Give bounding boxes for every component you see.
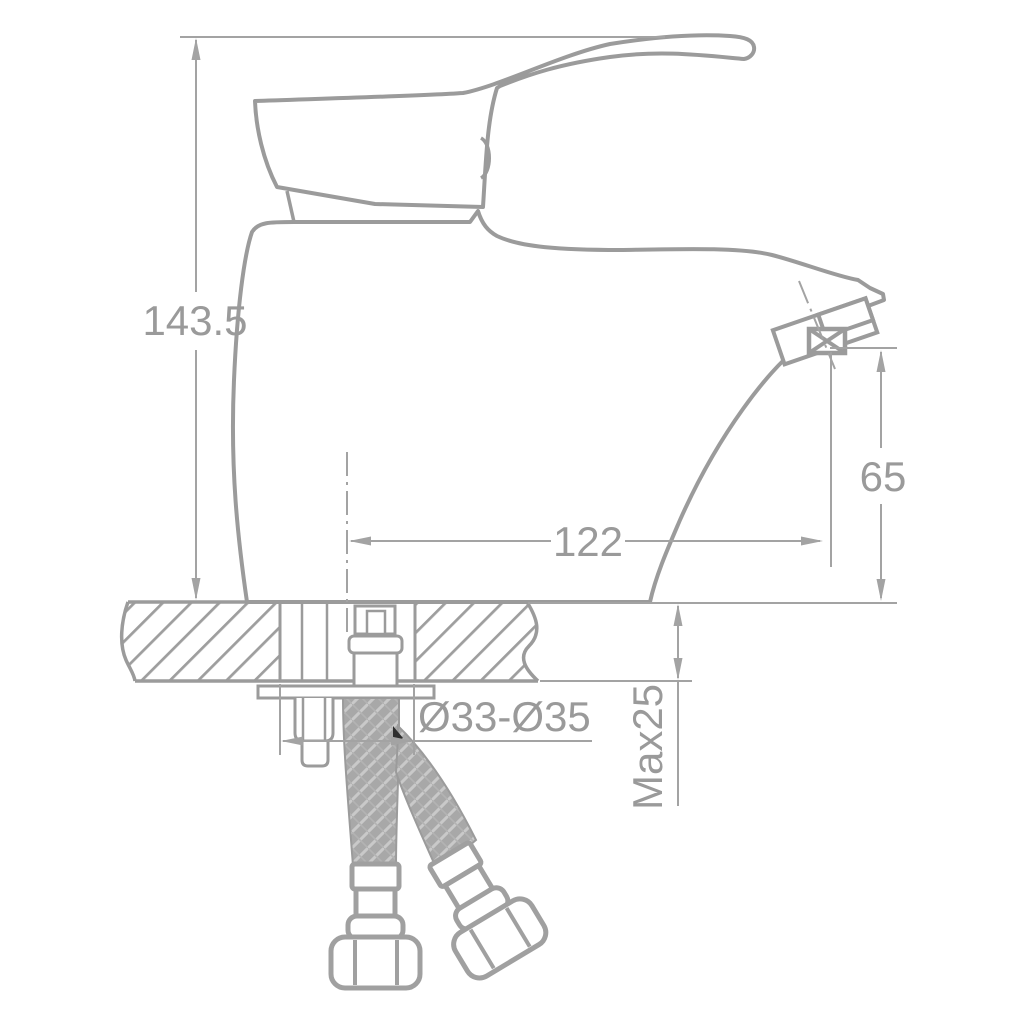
arrow-spout-height-bottom — [877, 579, 886, 601]
arrow-thickness-bottom — [674, 658, 683, 680]
arrow-height-top — [192, 38, 201, 60]
shank-collar — [349, 636, 402, 653]
connector-ferrule — [352, 864, 399, 889]
label-spout-height: 65 — [860, 453, 907, 500]
mounting-nut — [295, 698, 333, 741]
label-total-height: 143.5 — [142, 297, 247, 344]
hose-fitting-inner — [367, 611, 385, 634]
handle-outline — [255, 35, 754, 207]
arrow-thickness-top — [674, 604, 683, 626]
shank-assembly — [302, 604, 402, 686]
mounting-stud-tip — [302, 741, 328, 766]
arrow-height-bottom — [192, 578, 201, 600]
faucet-technical-drawing: 143.5 65 122 Ø33-Ø35 Max25 — [0, 0, 1024, 1024]
label-max-thickness: Max25 — [624, 684, 671, 810]
arrow-hole-left — [281, 737, 303, 746]
label-hole-diameter: Ø33-Ø35 — [418, 693, 591, 740]
deck-hatch-left — [122, 602, 280, 681]
body-joint-left-tick — [287, 191, 294, 222]
drawing-canvas: 143.5 65 122 Ø33-Ø35 Max25 — [0, 0, 1024, 1024]
deck-hatch-right — [415, 602, 538, 681]
mounting-flange — [258, 686, 434, 698]
hose-connector-left — [331, 864, 420, 988]
arrow-spout-height-top — [877, 350, 886, 372]
label-spout-reach: 122 — [553, 518, 623, 565]
deck-cross-section — [122, 602, 538, 681]
arrow-reach-right — [801, 537, 823, 546]
connector-hex-nut — [331, 937, 420, 988]
shank-tube — [354, 653, 397, 686]
hose-left — [343, 698, 399, 866]
handle-lever — [255, 35, 754, 207]
